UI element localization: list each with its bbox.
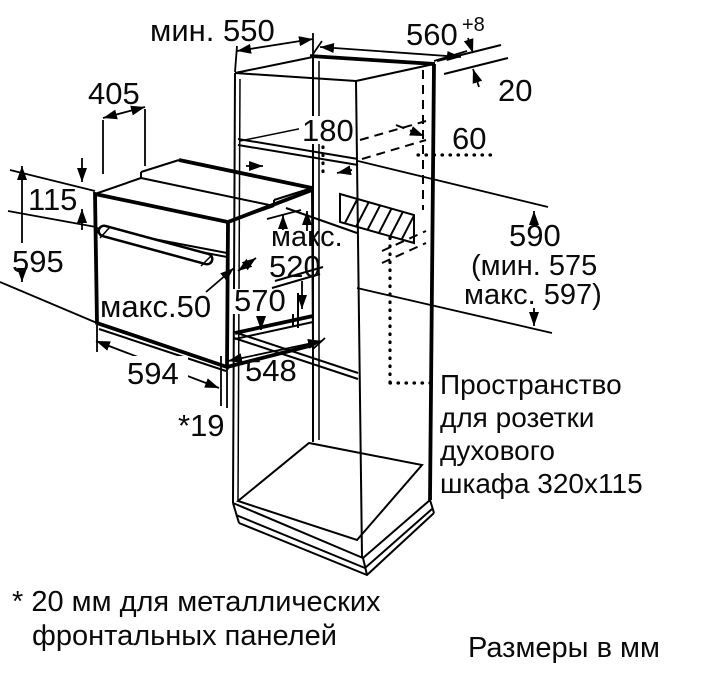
dotted-reference-lines (323, 147, 491, 383)
dim-180-arrows (246, 166, 352, 173)
label-top-depth: 405 (88, 76, 140, 111)
socket-note-line4: шкафа 320x115 (440, 468, 643, 499)
footnote-line1: * 20 мм для металлических (12, 586, 381, 618)
label-side-height-min: (мин. 575 (471, 250, 597, 282)
dim-405 (103, 107, 145, 174)
diagram-canvas: мин. 550 560 +8 405 180 20 60 115 595 ма… (0, 0, 701, 679)
socket-note-line3: духового (440, 435, 555, 466)
label-body-height: 570 (234, 283, 286, 318)
label-handle-depth: макс.50 (100, 289, 211, 324)
label-min-depth: мин. 550 (150, 13, 275, 48)
label-oven-height: 595 (12, 244, 64, 279)
label-panel-height: 115 (28, 182, 77, 217)
label-niche-depth: 520 (269, 249, 321, 284)
label-oven-width: 594 (127, 356, 179, 391)
footnote-line2: фронтальных панелей (32, 620, 337, 652)
label-niche-width-tol: +8 (462, 14, 485, 36)
label-side-height-max: макс. 597) (464, 279, 602, 311)
dim-20 (468, 38, 479, 87)
labels: мин. 550 560 +8 405 180 20 60 115 595 ма… (12, 13, 660, 664)
socket-note-line1: Пространство (440, 369, 622, 400)
units-note: Размеры в мм (468, 632, 660, 664)
label-shelf-height: 180 (302, 113, 354, 148)
socket-note-line2: для розетки (440, 402, 594, 433)
label-socket-offset: 60 (452, 121, 486, 156)
label-rear-gap: 20 (498, 73, 532, 108)
socket-space-hatch (330, 190, 434, 264)
installation-diagram: мин. 550 560 +8 405 180 20 60 115 595 ма… (0, 0, 701, 679)
cabinet-hidden-edges (360, 70, 426, 263)
label-front-overhang: *19 (178, 408, 225, 443)
label-niche-width: 560 (406, 17, 458, 52)
label-oven-depth: 548 (245, 353, 297, 388)
label-side-height: 590 (509, 218, 561, 253)
